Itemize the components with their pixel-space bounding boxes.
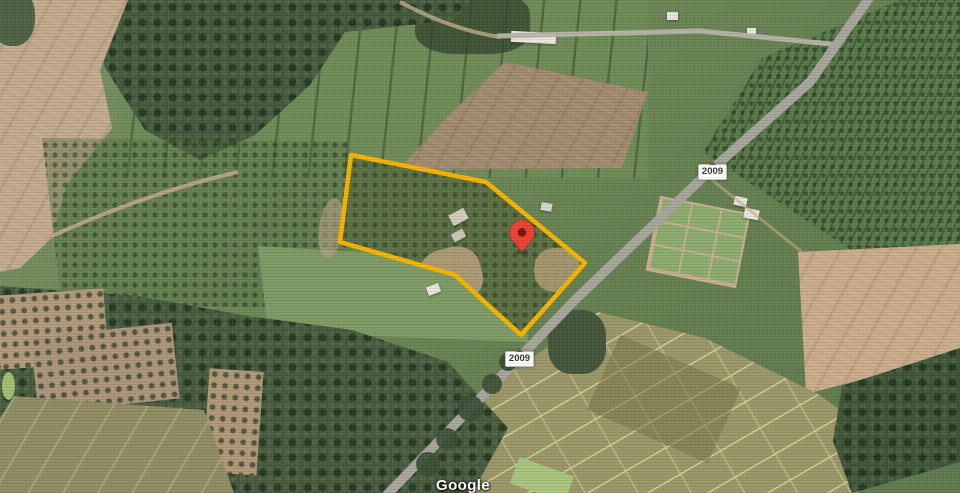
satellite-map-viewport[interactable]: 2009 2009 Google: [0, 0, 960, 493]
route-shield-label: 2009: [702, 167, 723, 177]
route-shield-south: 2009: [505, 351, 534, 367]
route-shield-north: 2009: [698, 164, 727, 180]
route-shield-label: 2009: [509, 354, 530, 364]
google-logo[interactable]: Google: [436, 477, 490, 493]
parcel-outline[interactable]: [340, 155, 585, 335]
dirt-path-mid-left: [52, 172, 238, 236]
dirt-path-top: [400, 2, 500, 37]
dirt-path-right: [712, 180, 802, 252]
roads-parcel-pin-overlay: [0, 0, 960, 493]
secondary-road: [497, 31, 841, 45]
